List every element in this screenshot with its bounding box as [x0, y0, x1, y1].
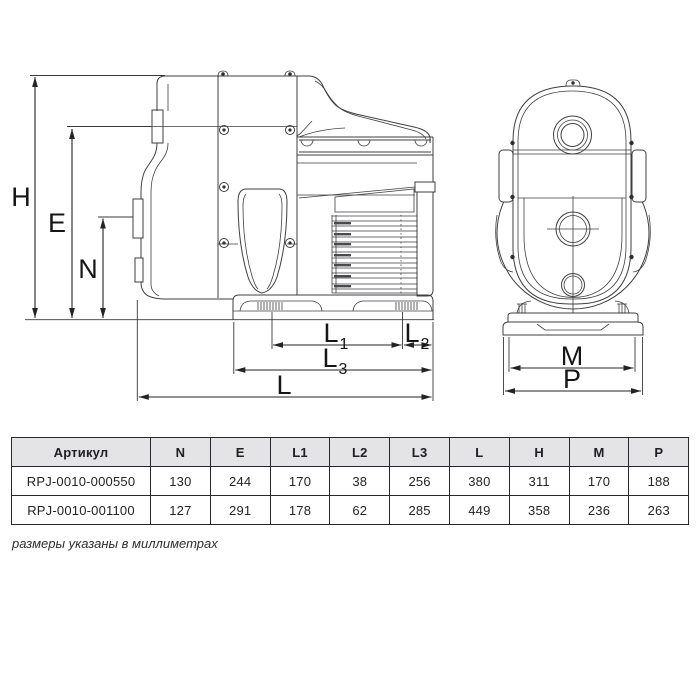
screws [220, 126, 295, 248]
cell-value: 178 [270, 496, 330, 525]
cell-value: 380 [449, 467, 509, 496]
pump-head-inner-wall [151, 84, 168, 296]
boss-lower [135, 258, 143, 282]
column-header-l3: L3 [390, 438, 450, 467]
dim-label-l2: L [404, 318, 419, 348]
cell-article: RPJ-0010-001100 [12, 496, 151, 525]
cell-value: 449 [449, 496, 509, 525]
cell-value: 188 [629, 467, 689, 496]
column-header-article: Артикул [12, 438, 151, 467]
column-header-p: P [629, 438, 689, 467]
page: H E N L 1 L 2 L 3 L M P Артикул N E L1 L… [0, 0, 700, 700]
side-view [67, 71, 435, 320]
cell-value: 244 [210, 467, 270, 496]
cell-value: 170 [569, 467, 629, 496]
cell-value: 62 [330, 496, 390, 525]
panel-lines [218, 76, 297, 298]
motor-band [297, 137, 433, 195]
cell-value: 311 [509, 467, 569, 496]
cell-value: 38 [330, 467, 390, 496]
column-header-e: E [210, 438, 270, 467]
handle [297, 76, 430, 143]
dim-label-l: L [276, 370, 291, 400]
table-row: RPJ-0010-000550 130 244 170 38 256 380 3… [12, 467, 689, 496]
technical-drawing: H E N L 1 L 2 L 3 L M P [0, 0, 700, 430]
dim-label-l3: L [322, 343, 337, 373]
table-header-row: Артикул N E L1 L2 L3 L H M P [12, 438, 689, 467]
dim-label-n: N [78, 254, 98, 284]
dim-label-l2-sub: 2 [421, 336, 430, 353]
dim-label-e: E [48, 208, 66, 238]
clamp-cover [238, 189, 287, 293]
cell-value: 285 [390, 496, 450, 525]
cell-value: 236 [569, 496, 629, 525]
column-header-h: H [509, 438, 569, 467]
motor-fins [332, 213, 417, 293]
top-nubs [218, 71, 295, 76]
front-view [496, 80, 651, 335]
column-header-l1: L1 [270, 438, 330, 467]
column-header-l2: L2 [330, 438, 390, 467]
cell-value: 130 [151, 467, 211, 496]
table-row: RPJ-0010-001100 127 291 178 62 285 449 3… [12, 496, 689, 525]
column-header-n: N [151, 438, 211, 467]
units-note: размеры указаны в миллиметрах [12, 536, 700, 551]
side-base [233, 295, 433, 320]
dim-label-l3-sub: 3 [339, 361, 348, 378]
front-top-nub [566, 80, 580, 86]
cell-article: RPJ-0010-000550 [12, 467, 151, 496]
cell-value: 170 [270, 467, 330, 496]
cell-value: 256 [390, 467, 450, 496]
cell-value: 263 [629, 496, 689, 525]
dim-label-l1-sub: 1 [340, 336, 349, 353]
terminal-cover [299, 187, 415, 212]
spec-table: Артикул N E L1 L2 L3 L H M P RPJ-0010-00… [11, 437, 689, 525]
cell-value: 291 [210, 496, 270, 525]
dim-label-h: H [11, 182, 31, 212]
cell-value: 358 [509, 496, 569, 525]
motor-end-cap [415, 182, 435, 296]
column-header-m: M [569, 438, 629, 467]
column-header-l: L [449, 438, 509, 467]
cell-value: 127 [151, 496, 211, 525]
dim-label-p: P [563, 364, 581, 394]
boss-middle [133, 199, 143, 238]
